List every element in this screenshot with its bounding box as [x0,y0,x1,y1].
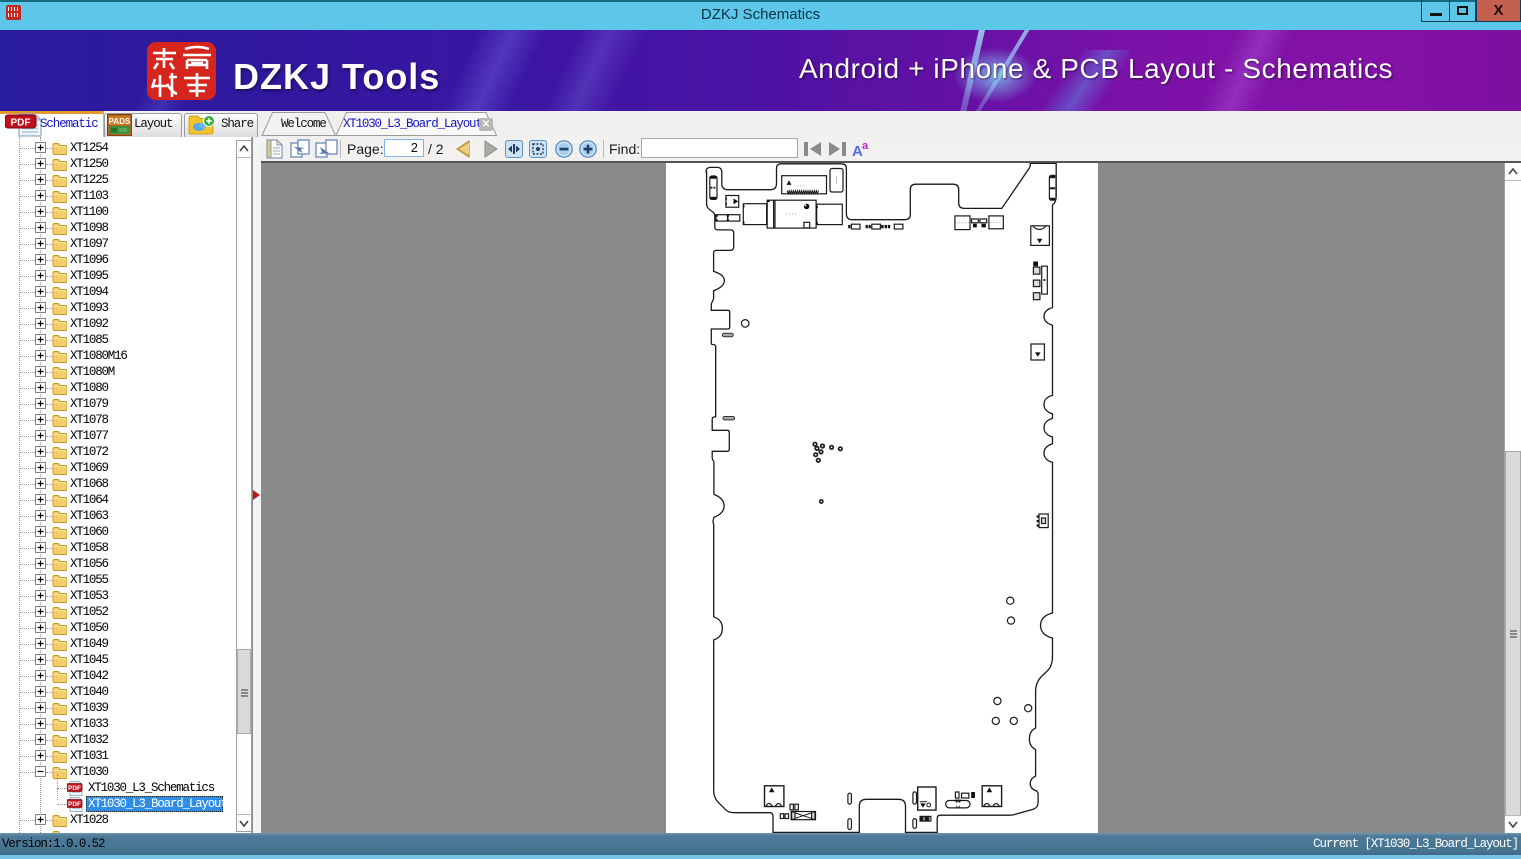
svg-text:PDF: PDF [11,118,31,129]
svg-text:PDF: PDF [68,801,81,808]
svg-text:PDF: PDF [68,785,81,792]
svg-text:PADS: PADS [109,117,131,126]
svg-text:a: a [862,140,869,152]
